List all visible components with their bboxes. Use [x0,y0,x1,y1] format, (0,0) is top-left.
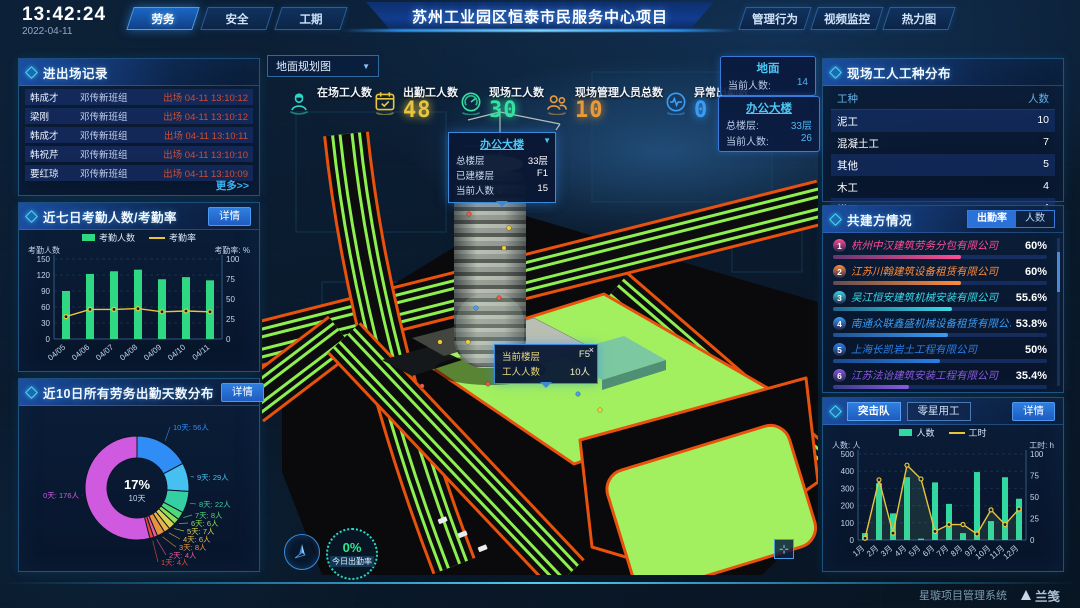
building-card-value: 26 [801,133,812,148]
panel-header: 近七日考勤人数/考勤率 详情 [19,203,259,230]
progress-fill [833,333,948,337]
team-name: 邓传新班组 [80,166,163,180]
panel-title: 近七日考勤人数/考勤率 [43,207,177,226]
legend-label: 考勤率 [169,231,196,244]
view-selector-value: 地面规划图 [276,58,331,74]
tooltip-label: 当前楼层 [502,349,540,363]
svg-text:400: 400 [841,467,855,476]
worker-types-panel: 现场工人工种分布 工种 人数 泥工10混凝土工7其他5木工4塔司4 [822,58,1064,202]
worker-icon [286,89,312,115]
diamond-icon [25,210,38,223]
chevron-down-icon: ▼ [362,62,370,71]
team-name: 邓传新班组 [80,147,163,161]
rank-badge: 6 [833,369,846,382]
worker-name: 韩祝芹 [30,147,80,161]
detail-button[interactable]: 详情 [208,207,251,226]
assault-team-panel: 突击队零星用工 详情 人数工时 010020030040050002550751… [822,397,1064,572]
svg-text:1月: 1月 [851,544,866,559]
attendance-days-panel: 近10日所有劳务出勤天数分布 详情 10天: 56人9天: 29人8天: 22人… [18,378,260,572]
brand-logo: 兰笺 [1021,586,1060,605]
partners-tab-人数[interactable]: 人数 [1016,211,1054,227]
partner-item[interactable]: 6江苏法诒建筑安装工程有限公司35.4% [833,368,1047,389]
stat-value: 30 [489,100,544,122]
svg-text:25: 25 [1030,515,1039,524]
svg-text:1天: 4人: 1天: 4人 [161,558,189,567]
tab-label: 管理行为 [743,8,807,29]
panel-title: 现场工人工种分布 [847,63,951,82]
svg-text:50: 50 [226,295,235,304]
svg-text:0: 0 [1030,536,1035,545]
partner-name: 江苏川翰建筑设备租赁有限公司 [851,264,1020,279]
partners-panel: 共建方情况 出勤率人数 1杭州中汉建筑劳务分包有限公司60%2江苏川翰建筑设备租… [822,205,1064,393]
assault-tab-零星用工[interactable]: 零星用工 [907,402,971,421]
tooltip-label: 当前人数 [456,183,494,197]
panel-header: 突击队零星用工 详情 [823,398,1063,425]
svg-text:04/06: 04/06 [70,342,92,362]
people-icon [544,89,570,115]
progress-track [833,281,1047,285]
svg-text:04/08: 04/08 [118,342,140,362]
building-card: 办公大楼 总楼层: 33层 当前人数: 26 [718,96,820,152]
dashboard: 13:42:24 2022-04-11 劳务安全工期 苏州工业园区恒泰市民服务中… [0,0,1080,608]
tooltip-value: 15 [537,183,548,197]
tooltip-label: 总楼层 [456,153,485,167]
event-time: 出场 04-11 13:10:11 [164,128,248,142]
attendance-rate-badge: 0% 今日出勤率 [326,528,378,580]
svg-text:9天: 29人: 9天: 29人 [197,473,229,482]
team-name: 邓传新班组 [80,109,163,123]
stat-现场管理人员总数: 现场管理人员总数10 [544,84,663,122]
type-count: 10 [1037,114,1049,129]
svg-text:17%: 17% [124,477,150,492]
type-name: 混凝土工 [837,136,879,151]
partner-value: 50% [1025,344,1047,356]
svg-text:04/11: 04/11 [191,342,212,362]
stats-row: 在场工人数出勤工人数48现场工人数30现场管理人员总数10异常出勤数0 [286,84,722,122]
type-count: 4 [1043,180,1049,195]
tab-热力图[interactable]: 热力图 [882,7,955,30]
panel-title: 共建方情况 [847,210,912,229]
legend-item-考勤人数: 考勤人数 [82,231,135,244]
scrollbar-thumb[interactable] [1057,252,1060,292]
svg-text:60: 60 [41,303,50,312]
clock: 13:42:24 2022-04-11 [22,4,106,37]
tab-label: 视频监控 [815,8,879,29]
tooltip-label: 已建楼层 [456,168,494,182]
svg-text:100: 100 [841,519,855,528]
attendance-rate-label: 今日出勤率 [330,556,374,567]
scrollbar[interactable] [1057,238,1060,386]
tooltip-row: 已建楼层 F1 [456,168,548,182]
tooltip-row: 当前楼层 F5 [502,349,590,363]
stat-value: 48 [403,100,458,122]
svg-text:50: 50 [1030,493,1039,502]
svg-text:90: 90 [41,287,50,296]
column-header: 人数 [1028,91,1049,106]
svg-text:2月: 2月 [865,544,880,559]
tooltip-value: F1 [537,168,548,182]
team-name: 邓传新班组 [80,90,163,104]
svg-text:7月: 7月 [935,544,950,559]
assault-tab-突击队[interactable]: 突击队 [847,402,901,421]
type-count: 5 [1043,158,1049,173]
svg-text:100: 100 [1030,450,1044,459]
partner-row: 1杭州中汉建筑劳务分包有限公司60% [833,238,1047,253]
building-card-label: 当前人数: [726,133,769,148]
building-tooltip: 办公大楼 ▼ 总楼层 33层 已建楼层 F1 当前人数 15 [448,132,556,203]
svg-text:200: 200 [841,502,855,511]
compass-icon[interactable] [284,534,320,570]
entry-exit-row: 韩祝芹邓传新班组出场 04-11 13:10:10 [25,146,253,162]
svg-text:10天: 56人: 10天: 56人 [173,423,209,432]
chevron-down-icon[interactable]: ▼ [543,136,551,145]
entry-exit-row: 韩成才邓传新班组出场 04-11 13:10:11 [25,127,253,143]
ground-card-row: 当前人数: 14 [728,77,808,92]
svg-text:考勤人数: 考勤人数 [28,245,60,255]
tab-label: 工期 [279,8,343,29]
progress-track [833,359,1047,363]
panel-title: 近10日所有劳务出勤天数分布 [43,383,214,402]
table-row: 木工4 [831,176,1055,198]
entry-exit-row: 韩成才邓传新班组出场 04-11 13:10:12 [25,89,253,105]
building-card-row: 当前人数: 26 [726,133,812,148]
tab-劳务[interactable]: 劳务 [126,7,199,30]
partner-name: 南通众联鑫盛机械设备租赁有限公司 [851,316,1011,331]
svg-text:工时: h: 工时: h [1029,440,1054,450]
legend-line-swatch [949,432,965,434]
tooltip-row: 当前人数 15 [456,183,548,197]
diamond-icon [25,66,38,79]
ground-card-value: 14 [797,77,808,92]
svg-text:8月: 8月 [949,544,964,559]
stat-text: 现场管理人员总数10 [575,84,663,122]
svg-text:25: 25 [226,315,235,324]
type-name: 其他 [837,158,858,173]
fullscreen-icon[interactable]: ⊹ [774,539,794,559]
event-time: 出场 04-11 13:10:12 [163,109,248,123]
clock-time: 13:42:24 [22,4,106,26]
type-count: 7 [1043,136,1049,151]
tab-label: 劳务 [131,8,195,29]
calendar-check-icon [372,89,398,115]
rank-badge: 2 [833,265,846,278]
svg-text:75: 75 [226,275,235,284]
partners-tab-出勤率[interactable]: 出勤率 [968,211,1016,227]
legend-item-人数: 人数 [899,426,934,439]
rank-badge: 4 [833,317,846,330]
legend-label: 工时 [969,426,987,439]
svg-text:300: 300 [841,484,855,493]
svg-text:6月: 6月 [921,544,936,559]
tab-视频监控[interactable]: 视频监控 [810,7,883,30]
svg-text:5月: 5月 [907,544,922,559]
progress-fill [833,255,961,259]
partner-name: 杭州中汉建筑劳务分包有限公司 [851,238,1020,253]
tab-工期[interactable]: 工期 [274,7,347,30]
svg-text:4月: 4月 [893,544,908,559]
svg-text:8天: 22人: 8天: 22人 [199,500,231,509]
table-header: 工种 人数 [831,88,1055,110]
tooltip-label: 工人人数 [502,364,540,378]
diamond-icon [829,405,842,418]
tab-安全[interactable]: 安全 [200,7,273,30]
entry-exit-row: 梁刚邓传新班组出场 04-11 13:10:12 [25,108,253,124]
site-3d-map[interactable]: 地面规划图 ▼ 在场工人数出勤工人数48现场工人数30现场管理人员总数10异常出… [262,42,818,575]
chart-legend: 考勤人数考勤率 [19,230,259,245]
svg-text:500: 500 [841,450,855,459]
progress-track [833,255,1047,259]
table-row: 其他5 [831,154,1055,176]
column-header: 工种 [837,91,858,106]
svg-text:3月: 3月 [879,544,894,559]
panel-header: 共建方情况 出勤率人数 [823,206,1063,233]
footer: 星璇项目管理系统 兰笺 [0,582,1080,608]
svg-text:0: 0 [850,536,855,545]
entry-exit-list: 韩成才邓传新班组出场 04-11 13:10:12梁刚邓传新班组出场 04-11… [19,89,259,181]
svg-text:30: 30 [41,319,50,328]
svg-text:75: 75 [1030,472,1039,481]
type-name: 木工 [837,180,858,195]
legend-bar-swatch [82,234,95,241]
tooltip-row: 总楼层 33层 [456,153,548,167]
tooltip-row: 工人人数 10人 [502,364,590,378]
tooltip-value: 10人 [570,364,590,378]
partner-name: 江苏法诒建筑安装工程有限公司 [851,368,1011,383]
building-card-title[interactable]: 办公大楼 [726,100,812,116]
partner-item[interactable]: 4南通众联鑫盛机械设备租赁有限公司53.8% [833,316,1047,337]
progress-track [833,307,1047,311]
worker-name: 梁刚 [30,109,80,123]
partners-list: 1杭州中汉建筑劳务分包有限公司60%2江苏川翰建筑设备租赁有限公司60%3吴江恒… [823,238,1063,389]
partner-item[interactable]: 2江苏川翰建筑设备租赁有限公司60% [833,264,1047,285]
panel-header: 现场工人工种分布 [823,59,1063,86]
svg-text:0: 0 [46,335,51,344]
more-link[interactable]: 更多>> [216,178,249,193]
ground-card-label: 当前人数: [728,77,771,92]
stat-出勤工人数: 出勤工人数48 [372,84,458,122]
partner-value: 53.8% [1016,318,1047,330]
progress-fill [833,359,940,363]
stat-在场工人数: 在场工人数 [286,84,372,122]
tab-管理行为[interactable]: 管理行为 [738,7,811,30]
panel-header: 近10日所有劳务出勤天数分布 详情 [19,379,259,406]
attendance7-panel: 近七日考勤人数/考勤率 详情 考勤人数考勤率 03060901201500255… [18,202,260,372]
stat-value: 10 [575,100,663,122]
partner-row: 2江苏川翰建筑设备租赁有限公司60% [833,264,1047,279]
worker-name: 韩成才 [30,128,80,142]
stat-label: 在场工人数 [317,84,372,100]
partner-name: 吴江恒安建筑机械安装有限公司 [851,290,1011,305]
svg-text:10天: 10天 [129,494,146,503]
close-icon[interactable]: × [589,345,594,355]
svg-text:12月: 12月 [1002,544,1021,562]
partner-item[interactable]: 5上海长凯岩土工程有限公司50% [833,342,1047,363]
rank-badge: 3 [833,291,846,304]
event-time: 出场 04-11 13:10:10 [163,147,248,161]
system-name: 星璇项目管理系统 [919,587,1007,603]
legend-label: 人数 [916,426,934,439]
table-row: 混凝土工7 [831,132,1055,154]
svg-text:0天: 176人: 0天: 176人 [43,491,79,500]
pulse-icon [663,89,689,115]
event-time: 出场 04-11 13:10:12 [163,90,248,104]
type-name: 泥工 [837,114,858,129]
partner-row: 3吴江恒安建筑机械安装有限公司55.6% [833,290,1047,305]
building-card-label: 总楼层: [726,117,759,132]
svg-text:04/07: 04/07 [94,342,116,362]
logo-text: 兰笺 [1035,586,1060,605]
progress-track [833,385,1047,389]
partner-value: 35.4% [1016,370,1047,382]
svg-text:120: 120 [37,271,51,280]
stat-text: 在场工人数 [317,84,372,100]
stat-现场工人数: 现场工人数30 [458,84,544,122]
top-bar: 13:42:24 2022-04-11 劳务安全工期 苏州工业园区恒泰市民服务中… [0,0,1080,42]
svg-text:人数: 人: 人数: 人 [832,440,860,450]
rank-badge: 1 [833,239,846,252]
stat-text: 出勤工人数48 [403,84,458,122]
partner-name: 上海长凯岩土工程有限公司 [851,342,1020,357]
diamond-icon [829,66,842,79]
title-glow-line [340,29,740,32]
worker-types-table: 工种 人数 泥工10混凝土工7其他5木工4塔司4 [831,88,1055,220]
gauge-icon [458,89,484,115]
diamond-icon [829,213,842,226]
detail-button[interactable]: 详情 [221,383,264,402]
progress-fill [833,385,909,389]
svg-text:100: 100 [226,255,240,264]
tab-label: 安全 [205,8,269,29]
logo-icon [1021,590,1031,600]
svg-text:04/05: 04/05 [46,342,68,362]
svg-text:04/09: 04/09 [142,342,164,362]
progress-fill [833,281,961,285]
building-tooltip-title[interactable]: 办公大楼 [456,136,548,152]
partner-item[interactable]: 3吴江恒安建筑机械安装有限公司55.6% [833,290,1047,311]
detail-button[interactable]: 详情 [1012,402,1055,421]
table-row: 泥工10 [831,110,1055,132]
attendance7-chart: 03060901201500255075100考勤人数考勤率: %04/0504… [26,245,252,369]
attendance-rate-value: 0% [343,541,362,555]
stat-text: 现场工人数30 [489,84,544,122]
building-card-row: 总楼层: 33层 [726,117,812,132]
svg-text:考勤率: %: 考勤率: % [214,245,250,255]
progress-track [833,333,1047,337]
ground-card: 地面 当前人数: 14 [720,56,816,96]
svg-text:150: 150 [37,255,51,264]
legend-label: 考勤人数 [99,231,135,244]
rank-badge: 5 [833,343,846,356]
worker-types-rows: 泥工10混凝土工7其他5木工4塔司4 [831,110,1055,220]
partner-value: 60% [1025,266,1047,278]
legend-line-swatch [149,237,165,239]
floor-tooltip: × 当前楼层 F5 工人人数 10人 [494,344,598,384]
progress-fill [833,307,952,311]
partner-item[interactable]: 1杭州中汉建筑劳务分包有限公司60% [833,238,1047,259]
legend-item-工时: 工时 [949,426,987,439]
panel-title: 进出场记录 [43,63,108,82]
partner-row: 6江苏法诒建筑安装工程有限公司35.4% [833,368,1047,383]
panel-header: 进出场记录 [19,59,259,86]
team-name: 邓传新班组 [80,128,164,142]
page-title: 苏州工业园区恒泰市民服务中心项目 [366,2,714,30]
worker-name: 韩成才 [30,90,80,104]
partner-row: 4南通众联鑫盛机械设备租赁有限公司53.8% [833,316,1047,331]
worker-name: 要红琼 [30,166,80,180]
chart-legend: 人数工时 [823,425,1063,440]
partner-row: 5上海长凯岩土工程有限公司50% [833,342,1047,357]
assault-tabs: 突击队零星用工 [847,402,971,421]
svg-text:0: 0 [226,335,231,344]
partners-tabs: 出勤率人数 [967,210,1055,228]
ground-card-title: 地面 [728,60,808,76]
building-card-value: 33层 [791,117,812,132]
partner-value: 60% [1025,240,1047,252]
clock-date: 2022-04-11 [22,26,106,37]
entry-exit-panel: 进出场记录 韩成才邓传新班组出场 04-11 13:10:12梁刚邓传新班组出场… [18,58,260,196]
view-selector[interactable]: 地面规划图 ▼ [267,55,379,77]
svg-text:04/10: 04/10 [166,342,188,362]
legend-bar-swatch [899,429,912,436]
tooltip-value: 33层 [528,153,548,167]
diamond-icon [25,386,38,399]
assault-team-chart: 01002003004005000255075100人数: 人工时: h1月2月… [830,440,1056,570]
partner-value: 55.6% [1016,292,1047,304]
tab-label: 热力图 [887,8,951,29]
legend-item-考勤率: 考勤率 [149,231,196,244]
attendance-days-donut-chart: 10天: 56人9天: 29人8天: 22人7天: 8人6天: 6人5天: 7人… [21,406,257,570]
